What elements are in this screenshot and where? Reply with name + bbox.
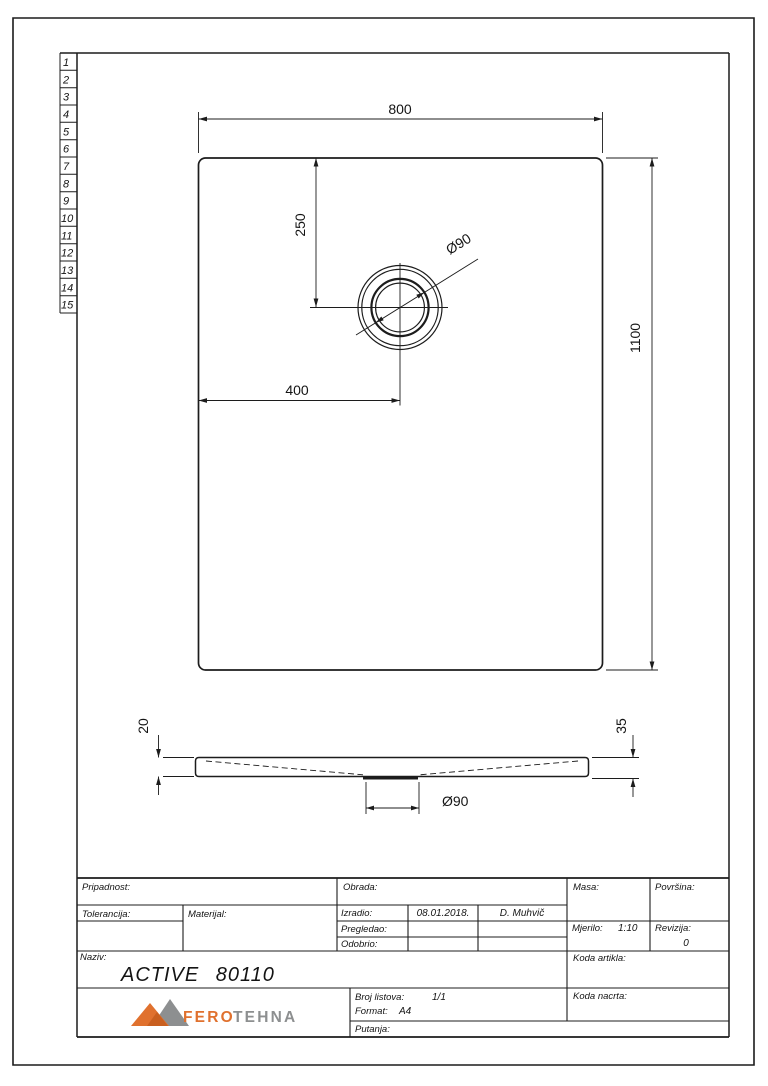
revision-row-number: 7 <box>63 161 70 173</box>
technical-drawing: 1 2 3 4 5 6 7 8 9 10 11 12 13 14 15 800 <box>0 0 768 1086</box>
logo-text-tehna: TEHNA <box>233 1009 297 1026</box>
dim-section-drain-diameter-90: Ø90 <box>366 782 469 814</box>
povrsina-label: Površina: <box>655 882 695 893</box>
logo-text-fero: FERO <box>183 1009 235 1026</box>
revision-row-number: 14 <box>61 282 73 294</box>
top-view: 800 1100 250 400 Ø90 <box>199 101 659 670</box>
ferotehna-logo: FERO TEHNA <box>131 999 297 1026</box>
mjerilo-label: Mjerilo: <box>572 923 603 934</box>
dim-text-35: 35 <box>613 718 629 734</box>
revision-row-number: 13 <box>61 265 74 277</box>
tray-profile <box>196 758 589 777</box>
masa-label: Masa: <box>573 882 599 893</box>
revision-row-number: 6 <box>63 144 70 156</box>
slope-hidden-lines <box>206 761 578 775</box>
drawing-sheet: 1 2 3 4 5 6 7 8 9 10 11 12 13 14 15 800 <box>0 0 768 1086</box>
dim-height-1100: 1100 <box>606 158 658 670</box>
materijal-label: Materijal: <box>188 909 227 920</box>
dim-text-drain-diameter: Ø90 <box>443 230 474 258</box>
dim-total-height-35: 35 <box>592 718 639 797</box>
koda-nacrta-label: Koda nacrta: <box>573 991 627 1002</box>
izradio-name: D. Muhvič <box>500 908 544 919</box>
dim-text-250: 250 <box>292 213 308 237</box>
revision-row-number: 8 <box>63 178 70 190</box>
odobrio-label: Odobrio: <box>341 939 378 950</box>
koda-artikla-label: Koda artikla: <box>573 953 626 964</box>
revision-row-number: 3 <box>63 92 70 104</box>
broj-listova-value: 1/1 <box>432 992 446 1003</box>
format-value: A4 <box>398 1006 412 1017</box>
izradio-label: Izradio: <box>341 908 373 919</box>
drain-top-view <box>310 263 448 406</box>
revizija-label: Revizija: <box>655 923 691 934</box>
tolerancija-label: Tolerancija: <box>82 909 131 920</box>
dim-text-800: 800 <box>388 101 412 117</box>
revizija-value: 0 <box>683 938 689 949</box>
dim-width-800: 800 <box>199 101 603 153</box>
title-block: Pripadnost: Obrada: Masa: Površina: Tole… <box>77 878 729 1037</box>
naziv-label: Naziv: <box>80 952 107 963</box>
dim-drain-offset-400: 400 <box>199 382 401 403</box>
izradio-date: 08.01.2018. <box>417 908 470 919</box>
revision-row-number: 5 <box>63 126 70 138</box>
dim-drain-offset-250: 250 <box>292 158 318 307</box>
revision-row-number: 9 <box>63 196 69 208</box>
pregledao-label: Pregledao: <box>341 924 387 935</box>
mjerilo-value: 1:10 <box>618 923 638 934</box>
tray-outline <box>199 158 603 670</box>
naziv-value: ACTIVE 80110 <box>120 964 275 986</box>
sheet-frame <box>13 18 754 1065</box>
dim-text-400: 400 <box>285 382 309 398</box>
revision-row-number: 10 <box>61 213 74 225</box>
broj-listova-label: Broj listova: <box>355 992 404 1003</box>
pripadnost-label: Pripadnost: <box>82 882 130 893</box>
putanja-label: Putanja: <box>355 1024 390 1035</box>
obrada-label: Obrada: <box>343 882 378 893</box>
dim-text-1100: 1100 <box>627 323 643 353</box>
revision-row-number: 2 <box>62 74 69 86</box>
revision-row-number: 11 <box>61 230 72 242</box>
outer-frame <box>13 18 754 1065</box>
dim-text-20: 20 <box>135 718 151 734</box>
format-label: Format: <box>355 1006 388 1017</box>
inner-frame <box>60 53 729 1037</box>
dim-edge-thickness-20: 20 <box>135 718 194 795</box>
revision-row-number: 12 <box>61 248 73 260</box>
revision-row-number: 4 <box>63 109 69 121</box>
dim-text-section-drain-diameter: Ø90 <box>442 793 469 809</box>
revision-table: 1 2 3 4 5 6 7 8 9 10 11 12 13 14 15 <box>60 53 77 313</box>
revision-row-number: 1 <box>63 57 69 69</box>
revision-row-number: 15 <box>61 300 74 312</box>
section-view: 20 35 Ø90 <box>135 718 639 814</box>
